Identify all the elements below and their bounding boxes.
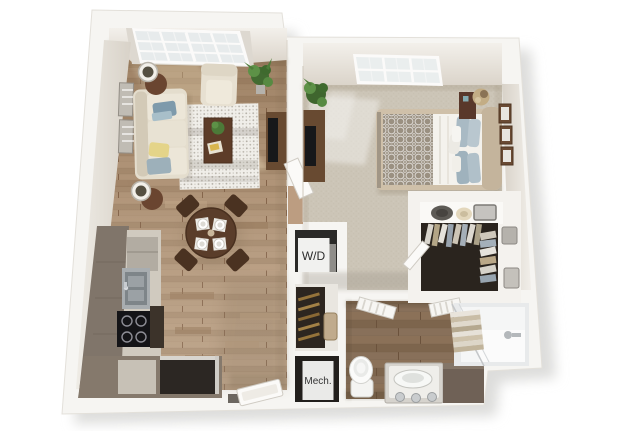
svg-text:W/D: W/D <box>302 249 326 263</box>
svg-text:Mech.: Mech. <box>304 376 331 387</box>
